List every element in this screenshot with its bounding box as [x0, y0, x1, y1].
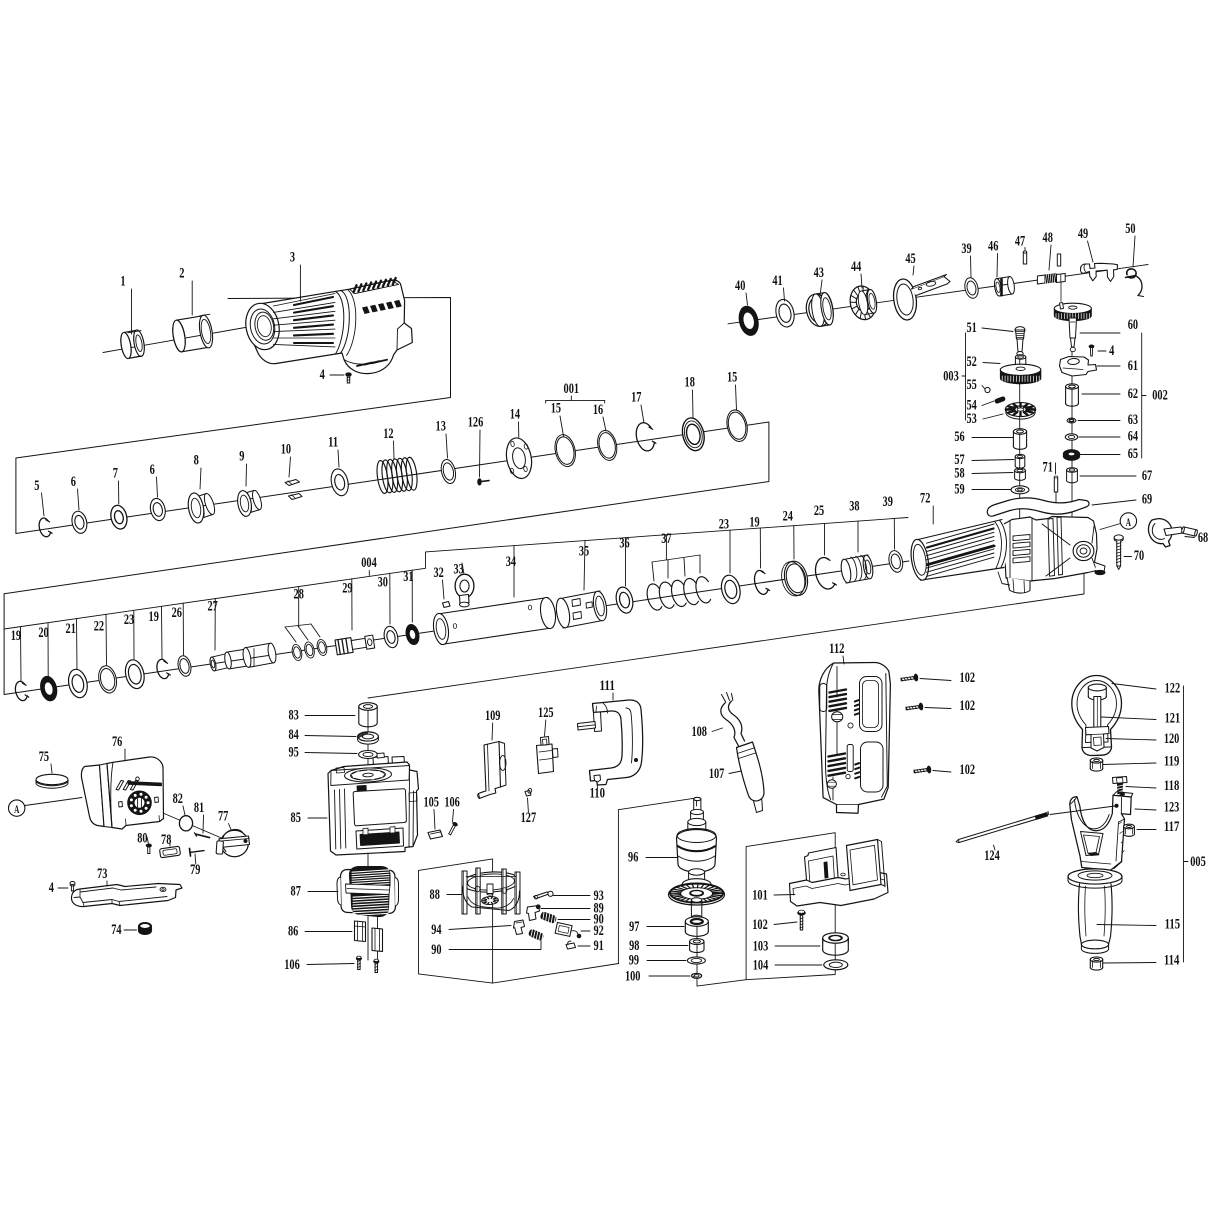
- svg-text:123: 123: [1164, 800, 1180, 816]
- svg-text:7: 7: [113, 466, 118, 482]
- svg-text:124: 124: [984, 848, 1000, 864]
- svg-text:004: 004: [361, 555, 377, 571]
- svg-text:6: 6: [150, 462, 155, 478]
- svg-text:47: 47: [1015, 234, 1025, 250]
- svg-text:79: 79: [190, 862, 200, 878]
- svg-text:119: 119: [1164, 754, 1180, 770]
- svg-text:118: 118: [1164, 778, 1180, 794]
- svg-text:22: 22: [94, 619, 104, 635]
- svg-text:43: 43: [814, 265, 824, 281]
- svg-text:68: 68: [1198, 530, 1208, 546]
- svg-text:120: 120: [1164, 731, 1180, 747]
- svg-text:82: 82: [173, 791, 183, 807]
- svg-text:102: 102: [960, 762, 976, 778]
- svg-text:64: 64: [1128, 429, 1138, 445]
- svg-text:81: 81: [194, 800, 204, 816]
- svg-text:4: 4: [320, 367, 325, 383]
- svg-text:23: 23: [124, 612, 134, 628]
- svg-text:112: 112: [829, 641, 845, 657]
- svg-text:107: 107: [709, 766, 725, 782]
- svg-text:87: 87: [291, 884, 301, 900]
- svg-text:100: 100: [625, 969, 641, 985]
- svg-text:45: 45: [905, 251, 915, 267]
- svg-text:71: 71: [1043, 460, 1053, 476]
- svg-text:108: 108: [691, 724, 707, 740]
- svg-text:50: 50: [1125, 221, 1135, 237]
- svg-text:1: 1: [120, 274, 125, 290]
- svg-text:11: 11: [328, 435, 338, 451]
- svg-text:003: 003: [943, 369, 959, 385]
- svg-text:13: 13: [436, 419, 446, 435]
- svg-text:94: 94: [431, 922, 441, 938]
- svg-text:105: 105: [423, 795, 439, 811]
- svg-text:72: 72: [920, 491, 930, 507]
- svg-text:18: 18: [685, 375, 695, 391]
- svg-text:122: 122: [1165, 681, 1181, 697]
- svg-text:4: 4: [49, 880, 54, 896]
- svg-text:29: 29: [342, 581, 352, 597]
- svg-text:23: 23: [719, 517, 729, 533]
- svg-text:005: 005: [1190, 854, 1206, 870]
- svg-text:102: 102: [752, 917, 768, 933]
- svg-text:75: 75: [39, 749, 49, 765]
- svg-text:21: 21: [66, 621, 76, 637]
- svg-text:62: 62: [1128, 386, 1138, 402]
- svg-text:102: 102: [960, 670, 976, 686]
- svg-text:46: 46: [988, 239, 998, 255]
- svg-text:60: 60: [1128, 317, 1138, 333]
- svg-text:76: 76: [112, 734, 122, 750]
- svg-text:109: 109: [485, 708, 501, 724]
- svg-text:55: 55: [966, 377, 976, 393]
- svg-text:85: 85: [291, 810, 301, 826]
- svg-text:44: 44: [851, 259, 861, 275]
- svg-text:19: 19: [149, 609, 159, 625]
- svg-text:6: 6: [71, 474, 76, 490]
- svg-text:61: 61: [1128, 358, 1138, 374]
- svg-text:20: 20: [38, 625, 48, 641]
- svg-text:2: 2: [179, 265, 184, 281]
- svg-text:A: A: [14, 802, 19, 816]
- svg-text:59: 59: [954, 482, 964, 498]
- svg-text:73: 73: [97, 866, 107, 882]
- svg-text:92: 92: [593, 923, 603, 939]
- svg-text:69: 69: [1142, 492, 1152, 508]
- svg-text:91: 91: [593, 938, 603, 954]
- svg-text:17: 17: [631, 390, 641, 406]
- svg-text:19: 19: [749, 515, 759, 531]
- svg-text:16: 16: [593, 402, 603, 418]
- svg-text:36: 36: [619, 536, 629, 552]
- svg-text:14: 14: [510, 407, 520, 423]
- svg-text:97: 97: [629, 919, 639, 935]
- svg-text:88: 88: [430, 887, 440, 903]
- svg-text:19: 19: [11, 628, 21, 644]
- svg-text:83: 83: [288, 708, 298, 724]
- svg-text:86: 86: [288, 924, 298, 940]
- svg-text:111: 111: [599, 678, 615, 694]
- svg-text:99: 99: [629, 953, 639, 969]
- svg-text:80: 80: [137, 831, 147, 847]
- svg-text:38: 38: [849, 499, 859, 515]
- svg-text:24: 24: [783, 509, 793, 525]
- svg-text:115: 115: [1165, 917, 1181, 933]
- svg-text:49: 49: [1078, 226, 1088, 242]
- svg-text:40: 40: [735, 278, 745, 294]
- svg-text:27: 27: [207, 599, 217, 615]
- svg-text:84: 84: [288, 727, 298, 743]
- svg-text:126: 126: [468, 415, 484, 431]
- svg-text:101: 101: [752, 888, 768, 904]
- svg-text:A: A: [1126, 515, 1131, 529]
- svg-text:8: 8: [194, 453, 199, 469]
- svg-text:125: 125: [538, 705, 554, 721]
- svg-text:25: 25: [814, 503, 824, 519]
- svg-text:4: 4: [1109, 343, 1114, 359]
- svg-text:15: 15: [551, 401, 561, 417]
- svg-text:90: 90: [431, 942, 441, 958]
- svg-text:74: 74: [111, 922, 121, 938]
- svg-text:9: 9: [239, 449, 244, 465]
- svg-text:52: 52: [966, 354, 976, 370]
- svg-text:103: 103: [753, 939, 769, 955]
- svg-text:121: 121: [1165, 711, 1181, 727]
- svg-text:51: 51: [966, 320, 976, 336]
- svg-text:70: 70: [1134, 548, 1144, 564]
- svg-text:002: 002: [1152, 388, 1168, 404]
- svg-text:96: 96: [628, 850, 638, 866]
- svg-text:10: 10: [281, 442, 291, 458]
- svg-text:67: 67: [1142, 468, 1152, 484]
- svg-text:35: 35: [579, 544, 589, 560]
- svg-text:41: 41: [772, 273, 782, 289]
- svg-text:63: 63: [1128, 412, 1138, 428]
- svg-text:117: 117: [1164, 819, 1180, 835]
- svg-text:77: 77: [218, 809, 228, 825]
- svg-text:102: 102: [960, 698, 976, 714]
- svg-text:39: 39: [883, 494, 893, 510]
- svg-text:34: 34: [506, 554, 516, 570]
- svg-text:56: 56: [954, 429, 964, 445]
- svg-text:114: 114: [1164, 953, 1180, 969]
- svg-text:32: 32: [433, 565, 443, 581]
- svg-text:53: 53: [966, 411, 976, 427]
- svg-text:3: 3: [290, 250, 295, 266]
- svg-text:104: 104: [753, 958, 769, 974]
- svg-text:48: 48: [1043, 230, 1053, 246]
- svg-text:15: 15: [727, 370, 737, 386]
- svg-text:106: 106: [444, 795, 460, 811]
- svg-text:65: 65: [1128, 446, 1138, 462]
- svg-text:30: 30: [378, 575, 388, 591]
- svg-text:106: 106: [284, 957, 300, 973]
- svg-text:58: 58: [954, 466, 964, 482]
- svg-text:5: 5: [34, 478, 39, 494]
- svg-text:12: 12: [383, 426, 393, 442]
- svg-text:39: 39: [961, 241, 971, 257]
- svg-text:95: 95: [288, 745, 298, 761]
- svg-text:26: 26: [172, 605, 182, 621]
- svg-text:001: 001: [564, 381, 580, 397]
